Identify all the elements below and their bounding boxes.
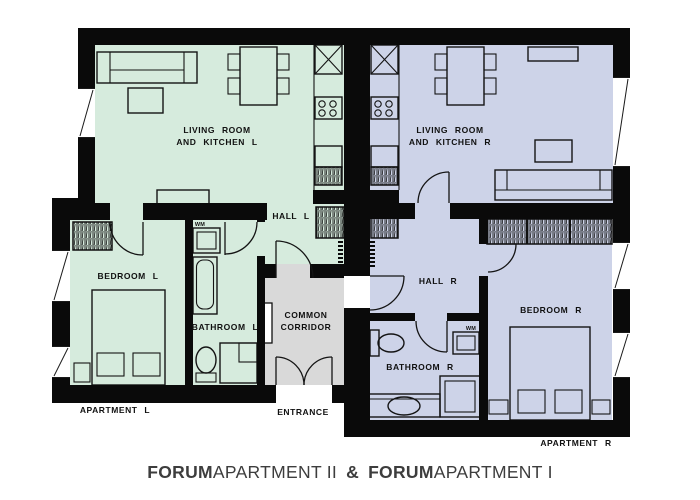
- wall-stub-kitchen-r: [370, 190, 399, 204]
- hall-r-label: HALL R: [419, 275, 457, 287]
- wall-bath-hall-l-upper: [257, 203, 265, 222]
- wall-hall-bedroom-r-lower: [479, 276, 488, 420]
- floor-plan-drawing: [0, 0, 700, 500]
- wall-bottom-left: [52, 385, 276, 403]
- title-brand-2: FORUM: [368, 462, 434, 482]
- title-name-2: APARTMENT I: [434, 462, 553, 482]
- title-brand-1: FORUM: [147, 462, 213, 482]
- floor-plan-page: LIVING ROOM AND KITCHEN L LIVING ROOM AN…: [0, 0, 700, 500]
- window-icon: [52, 250, 70, 302]
- wall-hall-bath-r-left: [370, 313, 415, 321]
- wall-central-lower: [344, 308, 370, 437]
- fridge-icon: [315, 167, 342, 185]
- wardrobe-icon: [487, 219, 612, 244]
- wall-hall-bedroom-r-upper: [479, 219, 488, 244]
- window-icon: [613, 242, 630, 290]
- wall-hall-corridor-left: [257, 264, 276, 278]
- wall-living-hall-r-left: [370, 203, 415, 219]
- window-icon: [52, 346, 70, 378]
- apartment-l-label: APARTMENT L: [80, 404, 150, 416]
- washing-machine-l-label: WM: [195, 222, 205, 228]
- wall-central-upper: [344, 28, 370, 276]
- wall-living-bedroom-l: [70, 203, 110, 220]
- wall-living-bath-l: [143, 203, 267, 220]
- title-name-1: APARTMENT II: [213, 462, 337, 482]
- washing-machine-r-label: WM: [466, 326, 476, 332]
- bathroom-r-label: BATHROOM R: [386, 361, 453, 373]
- wardrobe-icon: [316, 207, 344, 238]
- wall-living-hall-r-right: [450, 203, 613, 219]
- living-room-r-floor: [370, 45, 613, 203]
- wardrobe-icon: [73, 222, 112, 250]
- entrance-label: ENTRANCE: [277, 406, 329, 418]
- wall-bottom-right: [350, 420, 630, 437]
- wall-bedroom-bath-l: [185, 220, 193, 385]
- fridge-icon: [371, 167, 398, 185]
- bedroom-r-label: BEDROOM R: [520, 304, 582, 316]
- window-icon: [613, 77, 630, 167]
- window-icon: [78, 88, 95, 138]
- wall-hall-bath-r-right: [447, 313, 479, 321]
- wall-stub-kitchen-l: [313, 190, 344, 204]
- common-corridor-label: COMMON CORRIDOR: [281, 309, 332, 333]
- hall-l-label: HALL L: [272, 210, 309, 222]
- living-room-l-label: LIVING ROOM AND KITCHEN L: [176, 124, 257, 148]
- bedroom-l-label: BEDROOM L: [98, 270, 159, 282]
- page-title: FORUMAPARTMENT II&FORUMAPARTMENT I: [0, 462, 700, 483]
- title-separator: &: [346, 462, 359, 482]
- wall-hall-corridor-right: [310, 264, 344, 278]
- window-icon: [613, 332, 630, 378]
- apartment-r-label: APARTMENT R: [540, 437, 611, 449]
- living-room-r-label: LIVING ROOM AND KITCHEN R: [409, 124, 491, 148]
- bathroom-l-label: BATHROOM L: [192, 321, 258, 333]
